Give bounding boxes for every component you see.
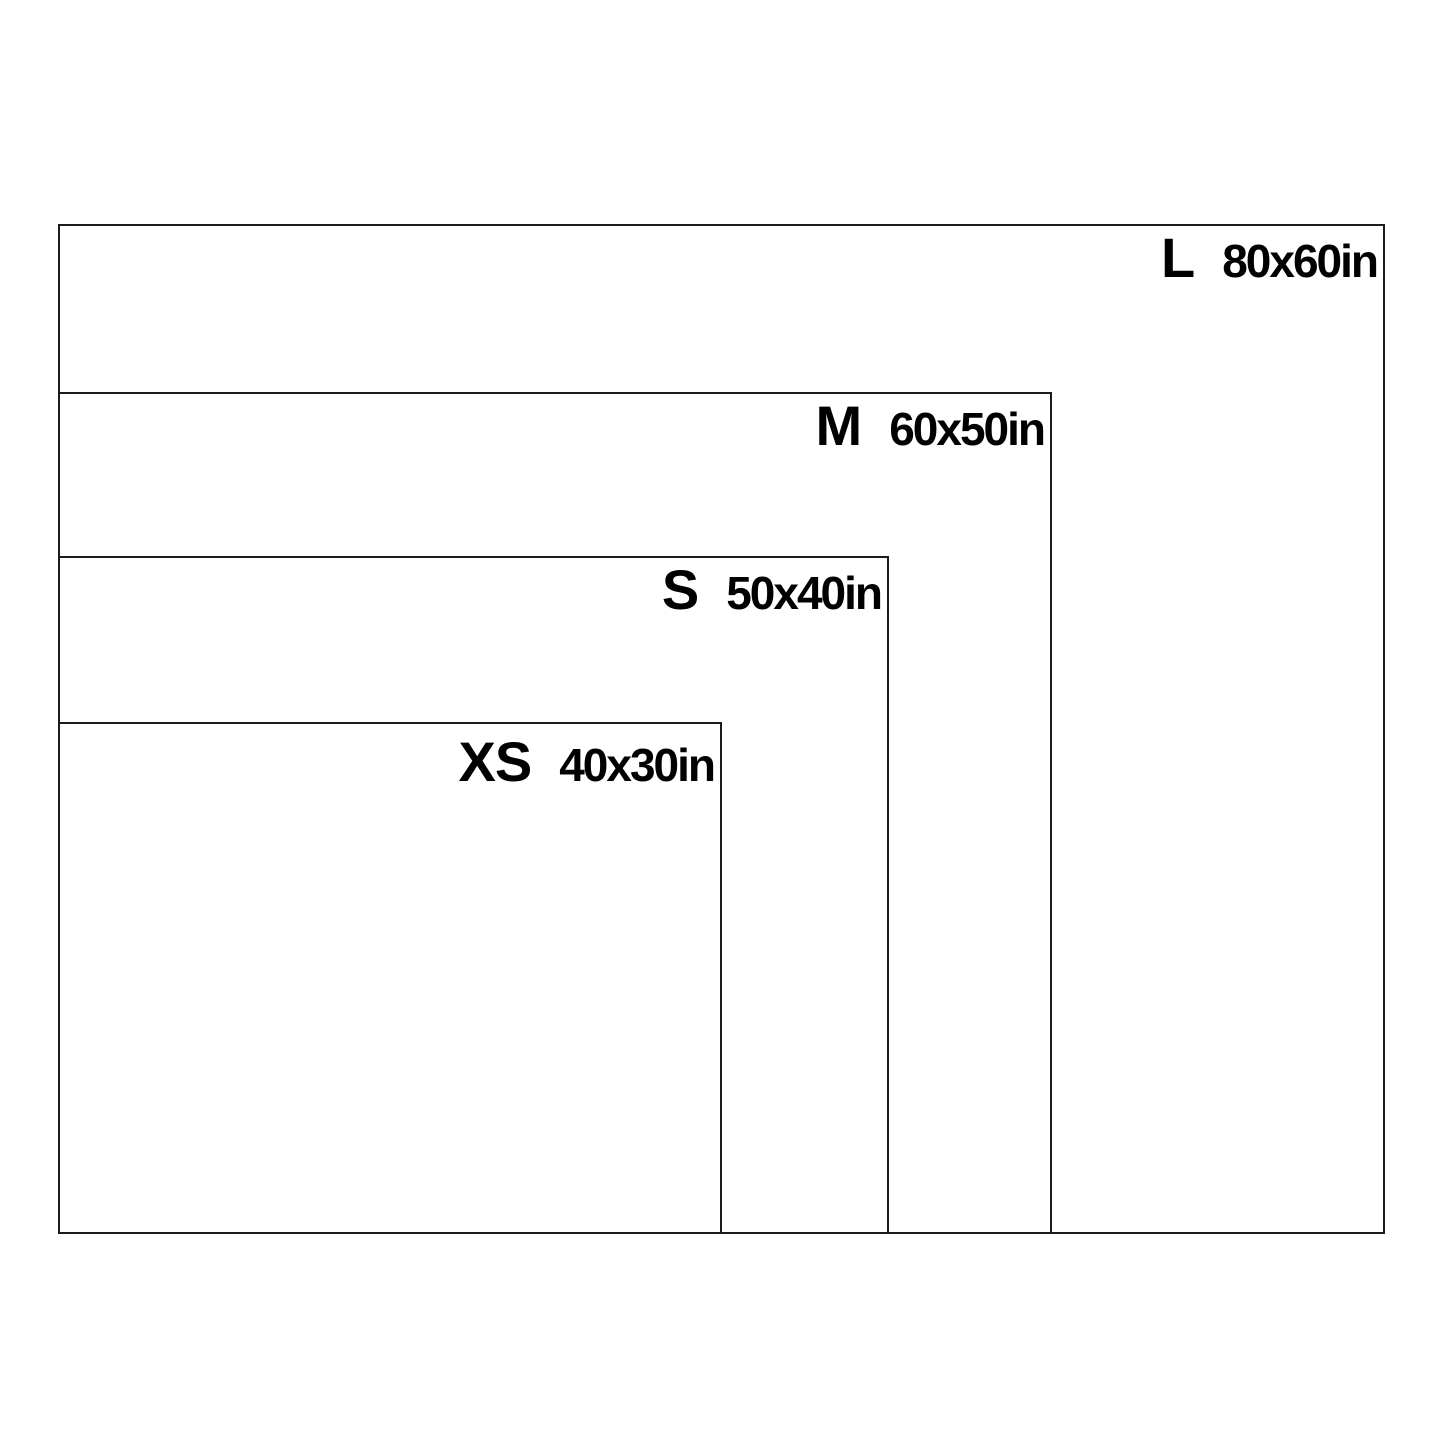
- size-dimensions-medium: 60x50in: [889, 404, 1044, 455]
- size-label-group-small: S 50x40in: [662, 562, 881, 619]
- size-letter-xsmall: XS: [459, 734, 532, 790]
- size-dimensions-small: 50x40in: [726, 568, 881, 619]
- size-dimensions-xsmall: 40x30in: [559, 740, 714, 791]
- size-label-group-medium: M 60x50in: [816, 398, 1044, 455]
- size-rect-xsmall: XS 40x30in: [58, 722, 722, 1234]
- size-label-group-xsmall: XS 40x30in: [459, 734, 715, 791]
- size-dimensions-large: 80x60in: [1222, 236, 1377, 287]
- size-comparison-diagram: L 80x60in M 60x50in S 50x40in XS 40x30in: [0, 0, 1445, 1445]
- size-letter-small: S: [662, 562, 698, 618]
- size-letter-large: L: [1161, 230, 1194, 286]
- size-label-group-large: L 80x60in: [1161, 230, 1377, 287]
- size-letter-medium: M: [816, 398, 862, 454]
